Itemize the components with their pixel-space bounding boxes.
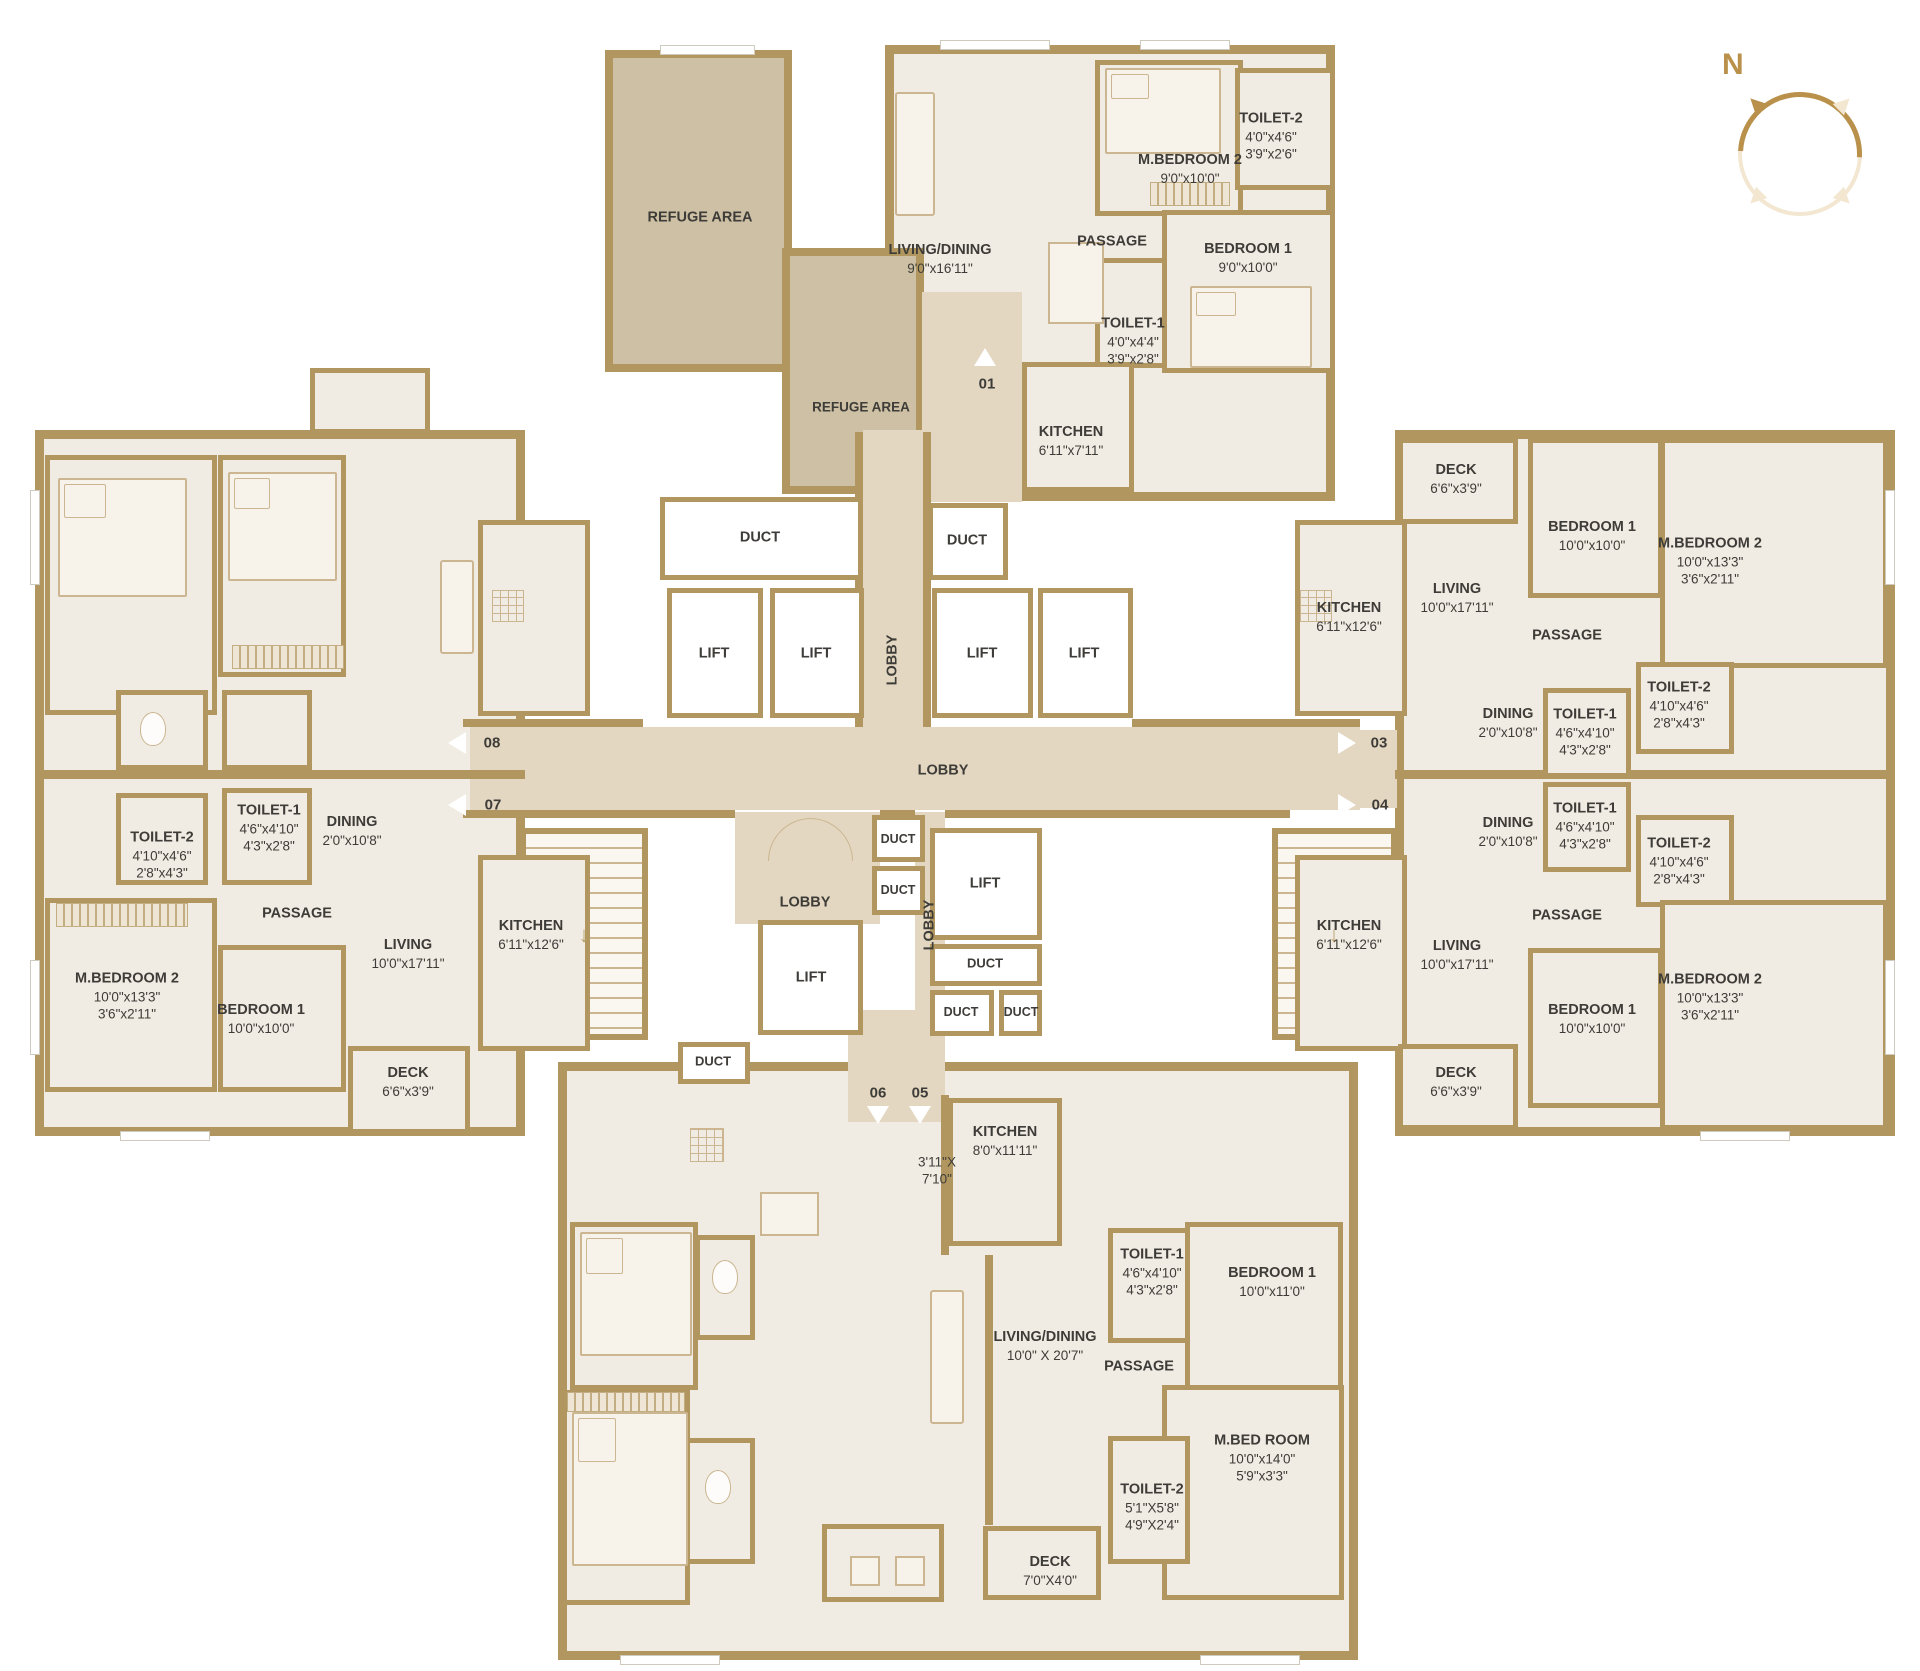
room-label-u05-mbedroom: M.BED ROOM10'0"x14'0"5'9"x3'3" [1214, 1431, 1310, 1484]
lobby-corridor-main [470, 727, 1360, 810]
stove-icon [492, 590, 524, 622]
room-label-u05-livingdining: LIVING/DINING10'0" X 20'7" [993, 1328, 1096, 1364]
wardrobe-icon [56, 903, 188, 927]
room-label-duct-6: DUCT [944, 1004, 979, 1020]
room-label-u05-bedroom1: BEDROOM 110'0"x11'0" [1228, 1264, 1316, 1300]
stair-arrow-left: ↓ [579, 922, 590, 948]
room-label-u05-toilet2: TOILET-25'1"X5'8"4'9"X2'4" [1120, 1480, 1183, 1533]
bed-icon [58, 478, 187, 597]
room-label-u03-dining: DINING2'0"x10'8" [1478, 705, 1537, 741]
room-label-lift-1: LIFT [699, 645, 730, 664]
wall-unit-divider-bottom-b [985, 1255, 993, 1525]
room-label-u03-toilet1: TOILET-14'6"x4'10"4'3"x2'8" [1553, 705, 1616, 758]
room-u08-toilet1 [222, 690, 312, 770]
room-label-u04-dining: DINING2'0"x10'8" [1478, 814, 1537, 850]
entry-corridor-01 [922, 292, 1022, 502]
room-label-lift-4: LIFT [1069, 645, 1100, 664]
entry-number-08: 08 [484, 735, 501, 752]
room-label-duct-8: DUCT [695, 1054, 731, 1071]
room-label-lobby-bottom: LOBBY [921, 900, 940, 951]
room-label-refuge-1: REFUGE AREA [648, 209, 753, 228]
deck-chair-icon [850, 1556, 880, 1586]
entry-arrow-01 [974, 348, 996, 366]
room-label-u07-passage: PASSAGE [262, 905, 332, 924]
room-label-u01-bedroom1: BEDROOM 19'0"x10'0" [1204, 240, 1292, 276]
room-label-u04-living: LIVING10'0"x17'11" [1420, 937, 1493, 973]
room-label-u07-bedroom1: BEDROOM 110'0"x10'0" [217, 1001, 305, 1037]
window [660, 45, 755, 55]
room-label-u04-toilet2: TOILET-24'10"x4'6"2'8"x4'3" [1647, 834, 1710, 887]
room-label-duct-5: DUCT [967, 956, 1003, 973]
room-label-u01-livingdining: LIVING/DINING9'0"x16'11" [888, 241, 991, 277]
room-label-u03-living: LIVING10'0"x17'11" [1420, 580, 1493, 616]
room-u05-bedroom1 [1185, 1222, 1343, 1390]
entry-number-03: 03 [1371, 735, 1388, 752]
entry-arrow-06 [867, 1106, 889, 1124]
room-label-u01-toilet2: TOILET-24'0"x4'6"3'9"x2'6" [1239, 109, 1302, 162]
toilet-icon [712, 1260, 738, 1294]
entry-number-05: 05 [912, 1085, 929, 1102]
room-label-u05-kitchen: KITCHEN8'0"x11'11" [973, 1123, 1038, 1159]
room-label-u05-passage: PASSAGE [1104, 1358, 1174, 1377]
room-label-u07-deck: DECK6'6"x3'9" [382, 1064, 434, 1100]
compass-arc-icon [1712, 66, 1887, 241]
room-label-u04-passage: PASSAGE [1532, 907, 1602, 926]
window [940, 40, 1050, 50]
window [1140, 40, 1230, 50]
room-label-lobby-small: LOBBY [780, 894, 831, 913]
room-label-lift-6: LIFT [970, 875, 1001, 894]
room-u06-deck [822, 1524, 944, 1602]
room-label-u01-mbedroom2: M.BEDROOM 29'0"x10'0" [1138, 151, 1242, 187]
wall-unit-divider-right [1395, 770, 1895, 779]
room-label-u03-kitchen: KITCHEN6'11"x12'6" [1316, 599, 1382, 635]
room-label-u07-toilet2: TOILET-24'10"x4'6"2'8"x4'3" [130, 828, 193, 881]
room-label-lift-5: LIFT [796, 969, 827, 988]
entry-arrow-05 [909, 1106, 931, 1124]
entry-number-06: 06 [870, 1085, 887, 1102]
sofa-icon [440, 560, 474, 654]
room-label-duct-4: DUCT [881, 882, 916, 898]
room-u05-kitchen [948, 1098, 1062, 1246]
room-u08-deck [310, 368, 430, 434]
window [120, 1131, 210, 1141]
room-label-u01-toilet1: TOILET-14'0"x4'4"3'9"x2'8" [1101, 314, 1164, 367]
room-label-duct-3: DUCT [881, 831, 916, 847]
bed-icon [228, 472, 337, 581]
room-label-u04-deck: DECK6'6"x3'9" [1430, 1064, 1482, 1100]
room-label-u03-passage: PASSAGE [1532, 627, 1602, 646]
room-label-u05-toilet1: TOILET-14'6"x4'10"4'3"x2'8" [1120, 1245, 1183, 1298]
sofa-icon [930, 1290, 964, 1424]
compass-north-label: N [1722, 48, 1744, 82]
wardrobe-icon [232, 645, 344, 669]
room-label-u04-kitchen: KITCHEN6'11"x12'6" [1316, 917, 1382, 953]
room-u04-kitchen [1295, 855, 1407, 1051]
room-label-u04-bedroom1: BEDROOM 110'0"x10'0" [1548, 1001, 1636, 1037]
dining-table-icon [760, 1192, 819, 1236]
room-label-u07-kitchen: KITCHEN6'11"x12'6" [498, 917, 564, 953]
room-label-u07-mbedroom2: M.BEDROOM 210'0"x13'3"3'6"x2'11" [75, 969, 179, 1022]
window [620, 1655, 720, 1665]
wardrobe-icon [567, 1392, 685, 1412]
entry-arrow-08 [448, 732, 466, 754]
wall-unit-divider-left [35, 770, 525, 779]
window [1700, 1131, 1790, 1141]
wall [945, 810, 1290, 818]
room-label-u03-deck: DECK6'6"x3'9" [1430, 461, 1482, 497]
bed-icon [572, 1412, 688, 1566]
toilet-icon [705, 1470, 731, 1504]
window [30, 960, 40, 1055]
room-label-lift-2: LIFT [801, 645, 832, 664]
floor-plan: ↓ ↓ [0, 0, 1920, 1671]
room-label-u01-kitchen: KITCHEN6'11"x7'11" [1039, 423, 1104, 459]
room-label-duct-7: DUCT [1004, 1004, 1039, 1020]
room-label-u03-toilet2: TOILET-24'10"x4'6"2'8"x4'3" [1647, 678, 1710, 731]
entry-number-01: 01 [979, 376, 996, 393]
wall [1132, 719, 1360, 727]
room-label-u01-passage: PASSAGE [1077, 233, 1147, 252]
compass: N [1700, 30, 1900, 230]
room-u07-kitchen [478, 855, 590, 1051]
entry-arrow-07 [448, 794, 466, 816]
sofa-icon [895, 92, 935, 216]
toilet-icon [140, 712, 166, 746]
room-label-u03-mbedroom2: M.BEDROOM 210'0"x13'3"3'6"x2'11" [1658, 534, 1762, 587]
room-label-u07-toilet1: TOILET-14'6"x4'10"4'3"x2'8" [237, 801, 300, 854]
room-label-u05-deck: DECK7'0"X4'0" [1023, 1553, 1077, 1589]
room-label-duct-1: DUCT [740, 529, 780, 548]
window [30, 490, 40, 585]
room-label-lift-3: LIFT [967, 645, 998, 664]
room-label-u04-toilet1: TOILET-14'6"x4'10"4'3"x2'8" [1553, 799, 1616, 852]
window [1885, 960, 1895, 1055]
room-label-u07-living: LIVING10'0"x17'11" [371, 936, 444, 972]
stove-icon [690, 1128, 724, 1162]
bed-icon [1105, 68, 1221, 154]
entry-arrow-04 [1338, 794, 1356, 816]
deck-chair-icon [895, 1556, 925, 1586]
wall [463, 719, 643, 727]
room-label-lobby-main: LOBBY [918, 762, 969, 781]
window [1885, 490, 1895, 585]
room-label-duct-2: DUCT [947, 532, 987, 551]
window [1200, 1655, 1300, 1665]
entry-number-04: 04 [1372, 797, 1389, 814]
room-label-lobby-top: LOBBY [884, 635, 903, 686]
wall [463, 810, 735, 818]
entry-number-07: 07 [485, 797, 502, 814]
bed-icon [580, 1232, 692, 1356]
room-label-u03-bedroom1: BEDROOM 110'0"x10'0" [1548, 518, 1636, 554]
dining-table-icon [1048, 242, 1104, 324]
room-label-refuge-2: REFUGE AREA [812, 398, 910, 415]
room-label-u07-dining: DINING2'0"x10'8" [322, 813, 381, 849]
room-label-u05-hall: 3'11"X7'10" [918, 1154, 956, 1189]
entry-arrow-03 [1338, 732, 1356, 754]
bed-icon [1190, 286, 1312, 368]
room-label-u04-mbedroom2: M.BEDROOM 210'0"x13'3"3'6"x2'11" [1658, 970, 1762, 1023]
